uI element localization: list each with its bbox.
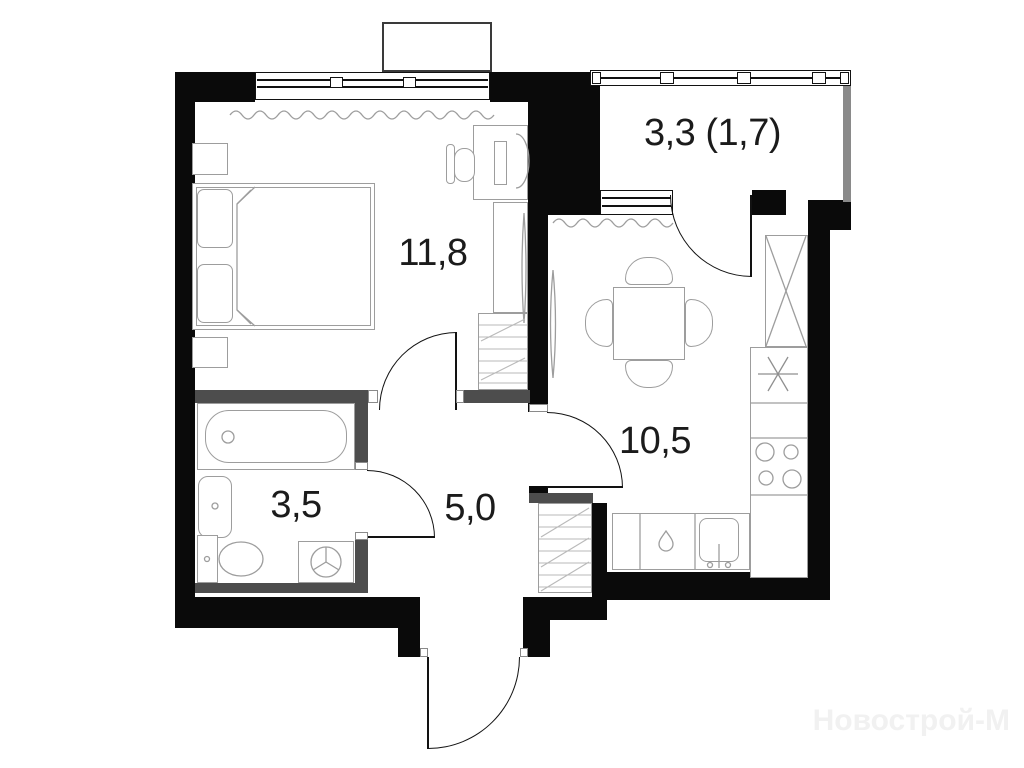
door-jamb — [529, 404, 548, 412]
entrance-door-leaf — [427, 657, 429, 749]
door-jamb — [420, 648, 428, 657]
toilet-button — [205, 557, 210, 562]
room-label-balcony: 3,3 (1,7) — [610, 112, 815, 154]
kitchen-wall-panel — [551, 270, 556, 378]
burner — [759, 471, 773, 485]
door-jamb — [355, 462, 368, 470]
water-drop — [659, 531, 673, 551]
radiator-wave-kitchen — [553, 219, 673, 227]
closet-hatch — [539, 508, 591, 591]
bed-blanket — [237, 187, 255, 326]
room-label-bathroom: 3,5 — [246, 484, 346, 526]
washbasin-drain — [212, 503, 218, 509]
faucet-knob — [726, 563, 731, 568]
monitor — [516, 134, 529, 188]
watermark: Новострой-М — [710, 702, 1010, 740]
faucet-knob — [708, 563, 713, 568]
radiator-wave-bedroom — [230, 111, 494, 119]
extractor-asterisk — [758, 357, 798, 391]
burner — [783, 470, 801, 488]
washing-machine-spoke — [313, 562, 326, 570]
bathtub-drain — [222, 431, 234, 443]
door-jamb — [355, 532, 368, 540]
burner — [756, 443, 774, 461]
balcony-door-leaf — [750, 195, 752, 277]
bed-blanket-fold — [237, 310, 251, 324]
wardrobe-door-panel — [522, 213, 526, 323]
door-jamb — [520, 648, 528, 657]
room-label-bedroom: 11,8 — [370, 232, 496, 274]
washing-machine-spoke — [326, 562, 339, 570]
kitchen-door-leaf — [547, 486, 623, 488]
toilet-bowl — [219, 542, 263, 576]
door-jamb — [368, 390, 378, 403]
burner — [784, 445, 798, 459]
floor-plan: 11,8 3,3 (1,7) 10,5 3,5 5,0 Новострой-М — [0, 0, 1024, 768]
shelving-hatch — [479, 319, 527, 383]
room-label-hallway: 5,0 — [420, 487, 520, 529]
room-label-kitchen: 10,5 — [592, 420, 718, 462]
bed-blanket-fold — [237, 190, 251, 204]
fixture-linework — [0, 0, 1024, 768]
bathroom-door-leaf — [367, 536, 435, 538]
door-jamb — [456, 390, 464, 403]
